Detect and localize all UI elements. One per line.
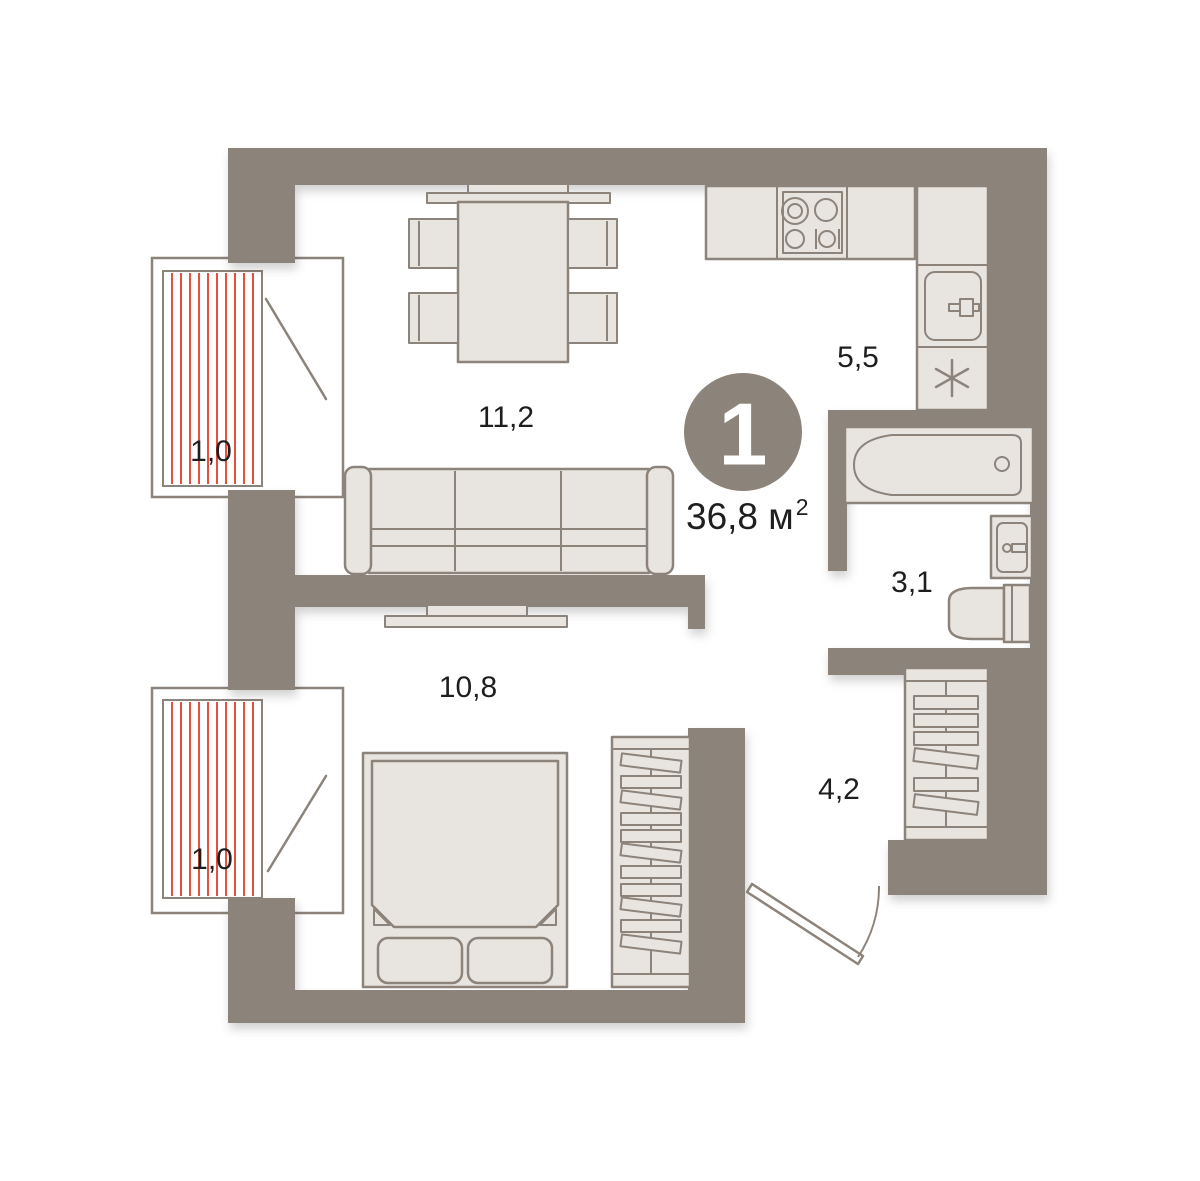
hallway-furniture [747,668,988,964]
total-area-value: 36,8 [686,496,758,537]
wall-bottom-bedroom [228,990,745,1023]
chair-icon [568,293,617,343]
bathtub-icon [845,427,1033,503]
wall-hall-bottom [888,840,1047,895]
chair-icon [409,293,458,343]
hallway-area-label: 4,2 [818,773,860,806]
total-area-unit: м [758,496,794,537]
balcony-upper-area-label: 1,0 [190,435,232,468]
bedroom-furniture [363,605,690,987]
wall-left-middle [228,490,295,690]
toilet-icon [949,585,1030,642]
bedroom-area-label: 10,8 [439,671,497,704]
bed-icon [363,753,567,987]
bedroom-wardrobe-icon [612,737,690,987]
hall-wardrobe-icon [905,668,988,840]
kitchen-area-label: 5,5 [837,341,879,374]
balcony-upper [152,258,343,497]
tv-icon [385,605,567,627]
living-room-area-label: 11,2 [478,401,534,434]
balcony-lower [152,688,343,913]
wall-living-bedroom-pier [688,575,705,629]
total-area-superscript: 2 [796,494,809,520]
bathroom-area-label: 3,1 [891,566,933,599]
wall-bathroom-top [828,410,1033,427]
wall-left-upper [228,148,295,263]
entrance-door-icon [747,884,879,964]
balcony-lower-area-label: 1,0 [191,843,233,876]
floor-plan-canvas: 1 36,8 м2 11,2 10,8 5,5 3,1 4,2 1,0 1,0 [0,0,1200,1176]
dining-table-icon [458,202,568,362]
sideboard-icon [468,184,568,193]
wall-living-bedroom [295,575,705,607]
floor-plan-page: 1 36,8 м2 11,2 10,8 5,5 3,1 4,2 1,0 1,0 [0,0,1200,1176]
chair-icon [568,219,617,268]
total-area-label: 36,8 м2 [686,494,809,537]
bathroom-fixtures [845,427,1033,642]
washbasin-icon [991,516,1032,578]
wall-bedroom-hall-pier [688,728,745,1023]
wall-kitchen-shaft [988,185,1030,411]
stove-icon [782,192,842,253]
pillow-icon [378,938,462,983]
living-room-furniture [345,184,673,574]
sofa-icon [345,467,673,574]
rooms-count-value: 1 [719,385,768,484]
wall-top [228,148,1047,185]
pillow-icon [468,938,552,983]
chair-icon [409,219,458,268]
